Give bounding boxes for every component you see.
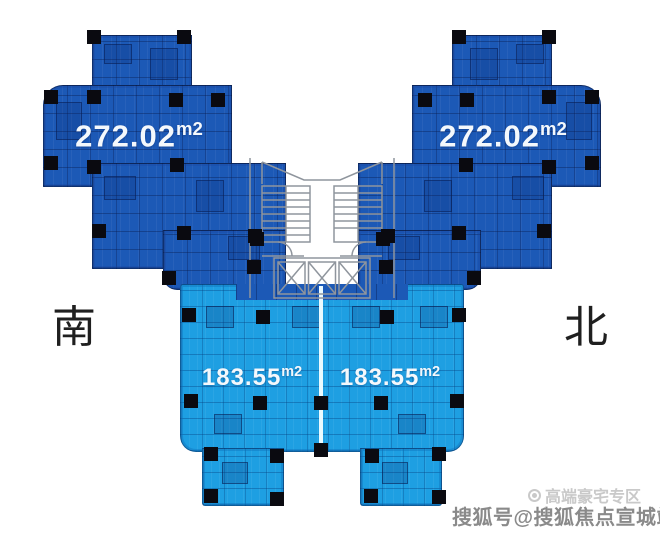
corridor-funnel [262,162,382,184]
stair-doors [262,242,382,256]
furniture-block [470,48,498,80]
area-value: 183.55 [202,364,281,391]
furniture-block [196,180,224,212]
structural-column [87,30,101,44]
structural-column [467,271,481,285]
area-value: 272.02 [439,118,540,153]
structural-column [450,394,464,408]
furniture-block [352,306,380,328]
furniture-block [104,176,136,200]
structural-column [44,156,58,170]
structural-column [452,30,466,44]
structural-column [87,160,101,174]
structural-column [459,158,473,172]
stair-right-treads [334,186,382,242]
structural-column [270,449,284,463]
compass-north-label: 北 [564,306,608,350]
furniture-block [512,176,544,200]
structural-column [374,396,388,410]
structural-column [177,30,191,44]
structural-column [537,224,551,238]
structural-column [432,447,446,461]
stair-left-treads [262,186,310,242]
structural-column [253,396,267,410]
compass-south-label: 南 [52,306,96,350]
area-label-upper-left: 272.02m2 [59,118,219,154]
area-label-lower-right: 183.55m2 [325,364,455,392]
structural-column [211,93,225,107]
structural-column [169,93,183,107]
area-unit: m2 [419,364,440,380]
structural-column [542,90,556,104]
structural-column [314,396,328,410]
furniture-block [398,414,426,434]
structural-column [87,90,101,104]
structural-column [379,260,393,274]
watermark-account-line: 搜狐号@搜狐焦点宣城站 [452,501,660,530]
structural-column [585,156,599,170]
structural-column [365,449,379,463]
furniture-block [104,44,132,64]
sohu-focus-logo-icon [528,489,541,502]
structural-column [432,490,446,504]
area-unit: m2 [176,118,203,139]
structural-column [247,260,261,274]
furniture-block [382,462,408,484]
furniture-block [420,306,448,328]
structural-column [452,308,466,322]
structural-column [177,226,191,240]
furniture-block [150,48,178,80]
structural-column [542,30,556,44]
structural-column [364,489,378,503]
unit-divider-line [319,286,323,450]
area-label-upper-right: 272.02m2 [423,118,583,154]
structural-column [44,90,58,104]
structural-column [170,158,184,172]
structural-column [162,271,176,285]
area-value: 272.02 [75,118,176,153]
furniture-block [214,414,242,434]
area-label-lower-left: 183.55m2 [187,364,317,392]
structural-column [250,232,264,246]
area-unit: m2 [281,364,302,380]
structural-column [380,310,394,324]
building-core-drawing [238,152,406,304]
structural-column [452,226,466,240]
structural-column [204,447,218,461]
structural-column [182,308,196,322]
structural-column [418,93,432,107]
structural-column [585,90,599,104]
floor-plan-canvas: 272.02m2 272.02m2 183.55m2 183.55m2 南 北 … [0,0,660,535]
structural-column [542,160,556,174]
furniture-block [424,180,452,212]
furniture-block [206,306,234,328]
structural-column [376,232,390,246]
furniture-block [292,306,320,328]
structural-column [204,489,218,503]
structural-column [184,394,198,408]
structural-column [314,443,328,457]
structural-column [460,93,474,107]
structural-column [256,310,270,324]
furniture-block [222,462,248,484]
area-unit: m2 [540,118,567,139]
structural-column [92,224,106,238]
furniture-block [516,44,544,64]
structural-column [270,492,284,506]
area-value: 183.55 [340,364,419,391]
